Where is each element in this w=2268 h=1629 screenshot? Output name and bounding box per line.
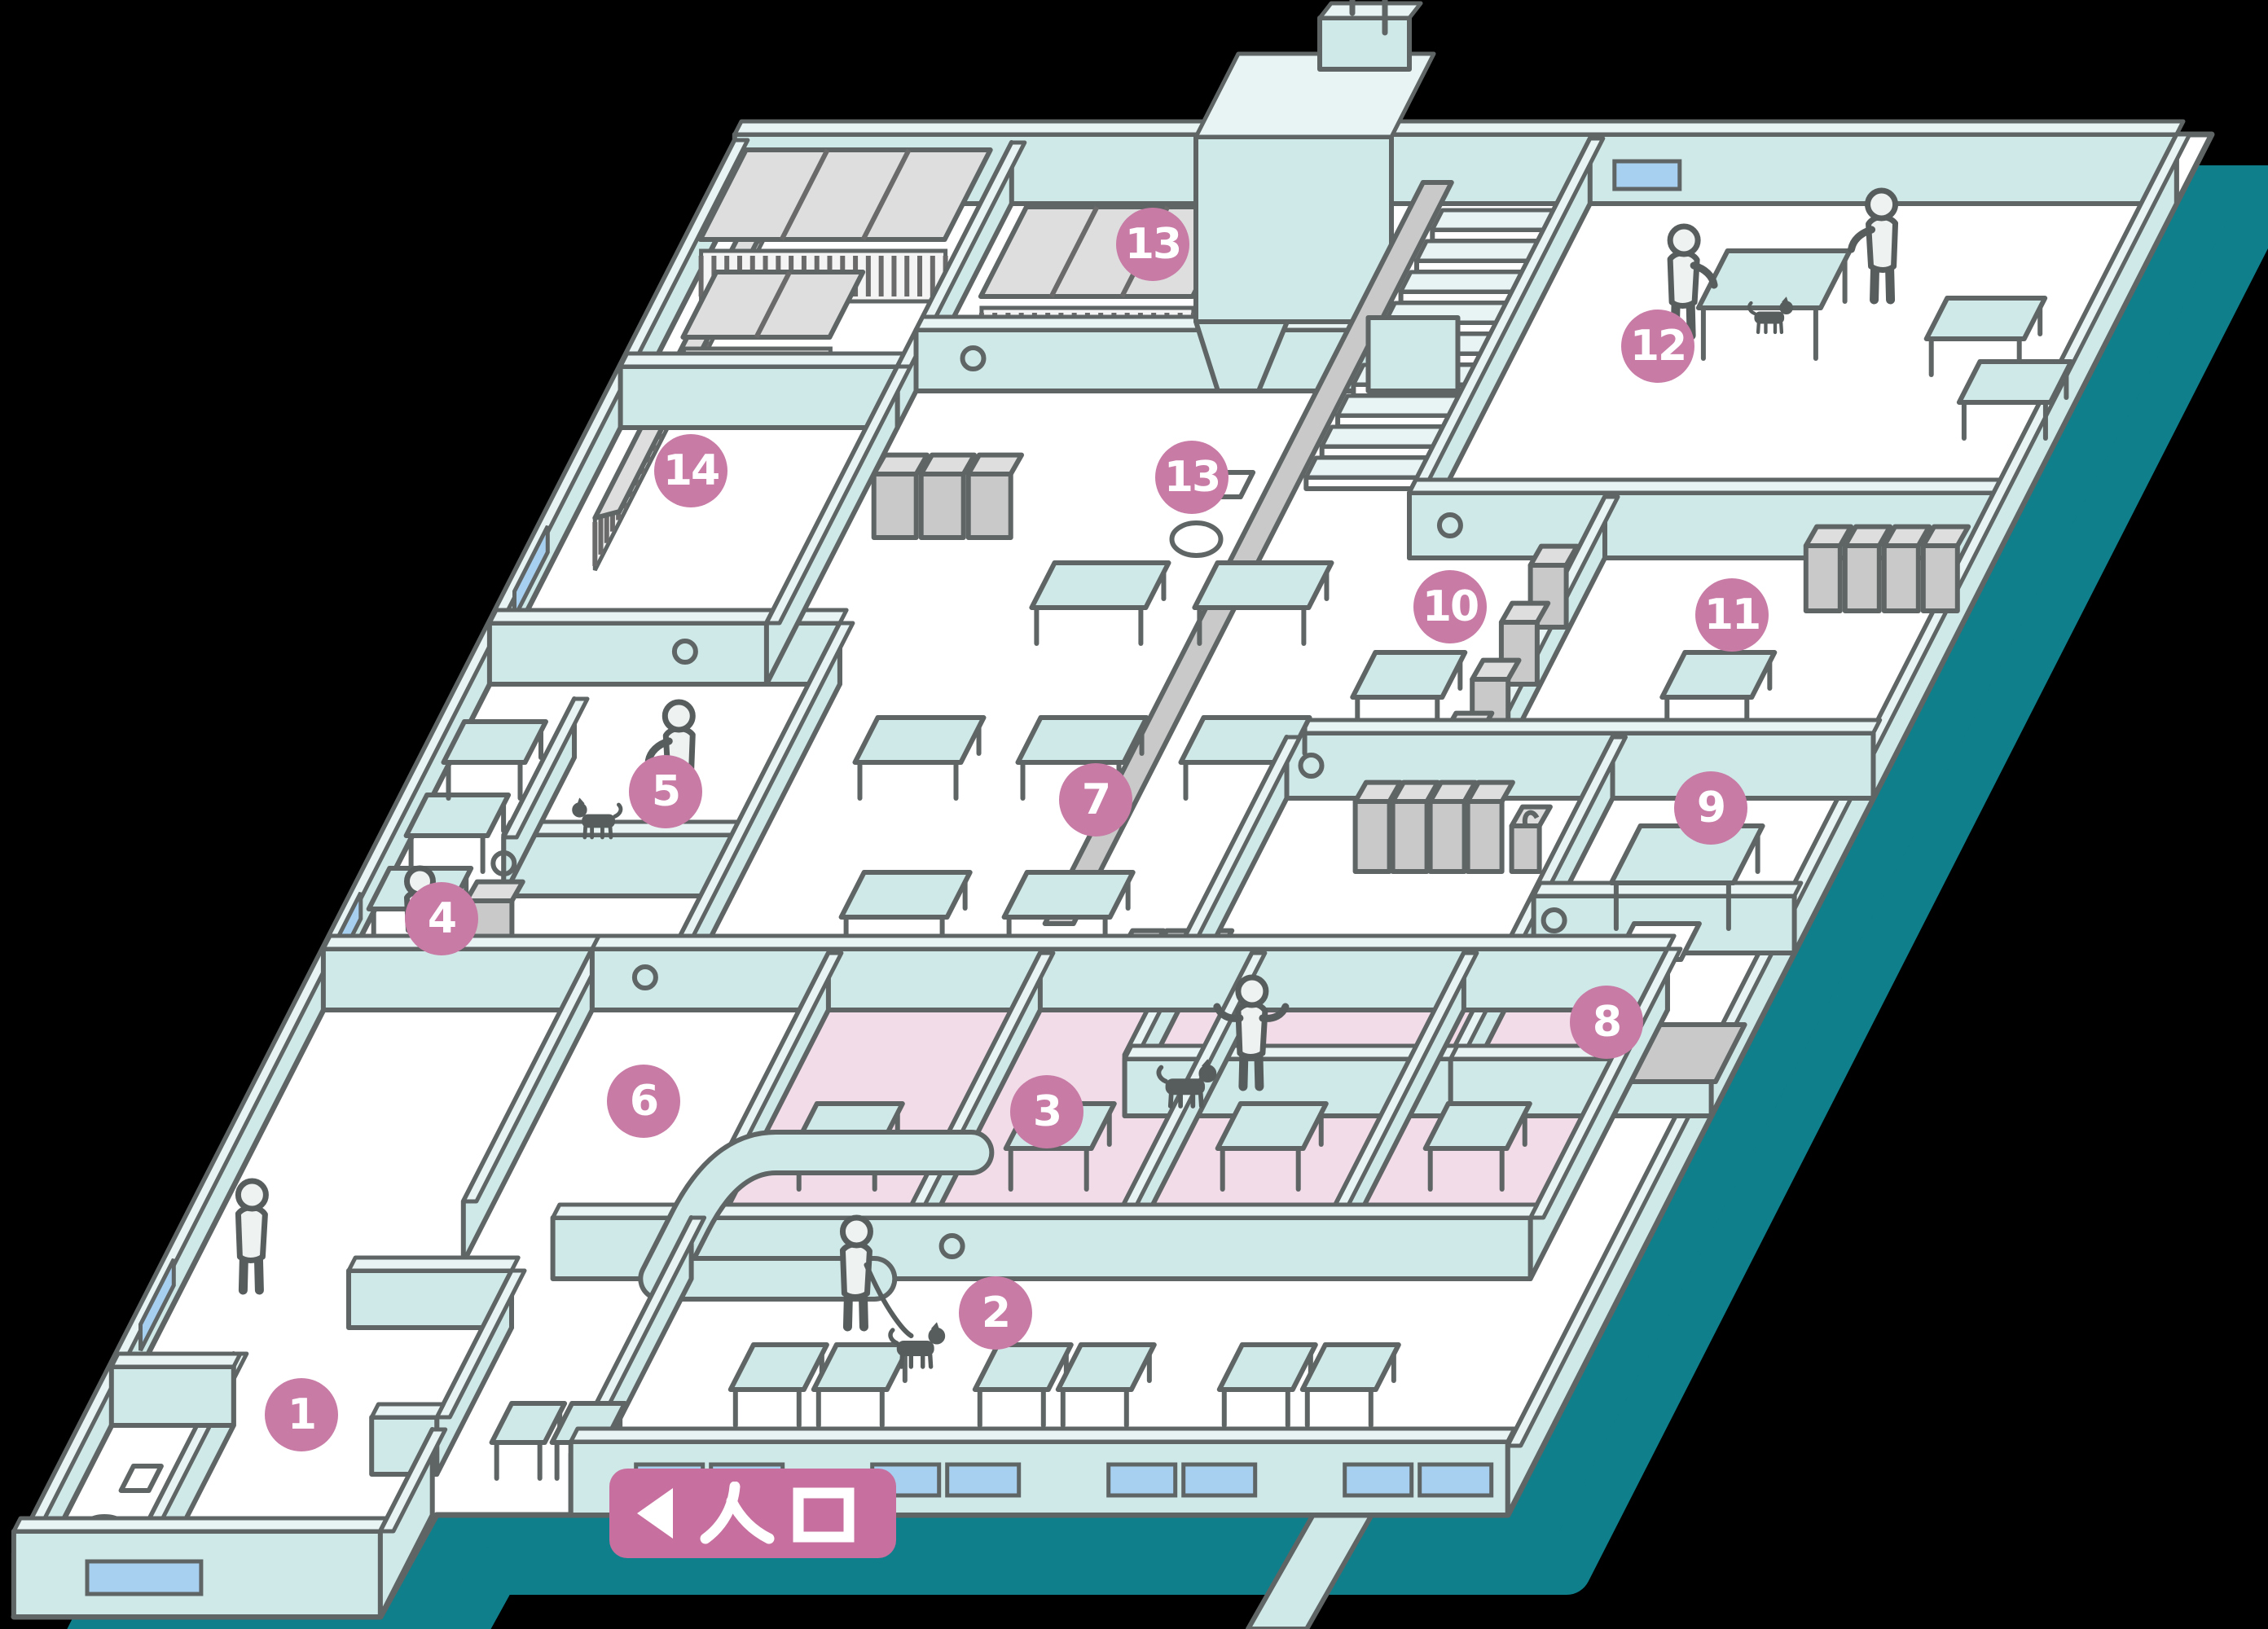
locker-top: [466, 882, 522, 901]
window: [87, 1561, 201, 1594]
bench: [444, 722, 547, 762]
walltop: [112, 1354, 240, 1367]
locker: [969, 474, 1011, 538]
bench: [1018, 718, 1147, 762]
wall: [323, 949, 592, 1010]
walltop: [735, 121, 2183, 134]
exam-table: [1699, 251, 1850, 308]
locker: [1356, 801, 1390, 872]
tower-penthouse-top: [1320, 3, 1421, 18]
locker: [1468, 801, 1502, 872]
locker: [1923, 546, 1958, 611]
map-marker-1[interactable]: 1: [265, 1378, 338, 1451]
map-marker-9[interactable]: 9: [1674, 771, 1747, 845]
walltop: [349, 1258, 518, 1271]
map-marker-13b[interactable]: 13: [1155, 441, 1228, 514]
bench: [1031, 563, 1168, 608]
locker: [1512, 826, 1540, 872]
tower-front: [1196, 137, 1391, 322]
walltop: [14, 1518, 387, 1531]
map-marker-3[interactable]: 3: [1010, 1075, 1083, 1148]
map-marker-12[interactable]: 12: [1621, 310, 1694, 383]
bench: [1927, 298, 2046, 339]
entrance-label[interactable]: 入口: [609, 1469, 896, 1558]
wall: [112, 1367, 234, 1425]
map-marker-7[interactable]: 7: [1059, 763, 1132, 836]
map-marker-13a[interactable]: 13: [1116, 208, 1189, 281]
kennel-cage-top: [701, 150, 991, 239]
walltop: [1287, 720, 1880, 733]
locker-top: [969, 455, 1022, 474]
bench: [407, 795, 508, 836]
walltop: [592, 936, 1674, 949]
bench: [1004, 872, 1133, 917]
locker-top: [921, 455, 974, 474]
entrance-arrow-icon: [637, 1488, 673, 1539]
map-marker-5[interactable]: 5: [629, 755, 702, 828]
locker: [1884, 546, 1919, 611]
window: [1420, 1464, 1492, 1495]
wall: [592, 949, 1668, 1010]
elevator-door: [1369, 318, 1458, 391]
locker-top: [1472, 661, 1519, 679]
map-marker-8[interactable]: 8: [1570, 986, 1643, 1059]
bench: [1959, 362, 2072, 402]
locker: [1806, 546, 1840, 611]
map-marker-11[interactable]: 11: [1695, 578, 1769, 652]
window: [1184, 1464, 1255, 1495]
entrance-glyph-kuchi: [798, 1493, 849, 1537]
locker-top: [1468, 783, 1513, 801]
entrance-glyph-iri: [705, 1486, 769, 1539]
bench: [842, 872, 970, 917]
locker-top: [1531, 547, 1577, 565]
walltop: [1409, 480, 2002, 493]
bench: [1352, 652, 1465, 697]
bench: [1662, 652, 1774, 697]
locker: [1845, 546, 1879, 611]
tower-penthouse: [1320, 18, 1409, 69]
locker-top: [1501, 604, 1548, 622]
bench: [855, 718, 984, 762]
locker: [921, 474, 964, 538]
floor-map-stage: 123456789101112131314 入口: [0, 0, 2268, 1629]
window: [1109, 1464, 1176, 1495]
walltop: [621, 353, 904, 367]
map-marker-2[interactable]: 2: [959, 1276, 1032, 1350]
entrance-label-art: [631, 1482, 875, 1545]
window: [1615, 161, 1680, 189]
walltop: [1125, 1046, 1457, 1059]
map-marker-14[interactable]: 14: [654, 434, 727, 507]
walltop: [371, 1404, 443, 1417]
toilet-icon: [1172, 523, 1221, 555]
bench: [1194, 563, 1331, 608]
locker: [1431, 801, 1465, 872]
map-marker-6[interactable]: 6: [607, 1065, 680, 1138]
wall: [503, 835, 732, 896]
walltop: [571, 1429, 1514, 1442]
map-marker-10[interactable]: 10: [1413, 570, 1487, 643]
wall: [621, 367, 898, 428]
window: [1345, 1464, 1412, 1495]
map-marker-4[interactable]: 4: [405, 882, 478, 955]
window: [947, 1464, 1019, 1495]
locker: [874, 474, 916, 538]
locker-top: [1923, 527, 1968, 546]
locker: [1393, 801, 1427, 872]
